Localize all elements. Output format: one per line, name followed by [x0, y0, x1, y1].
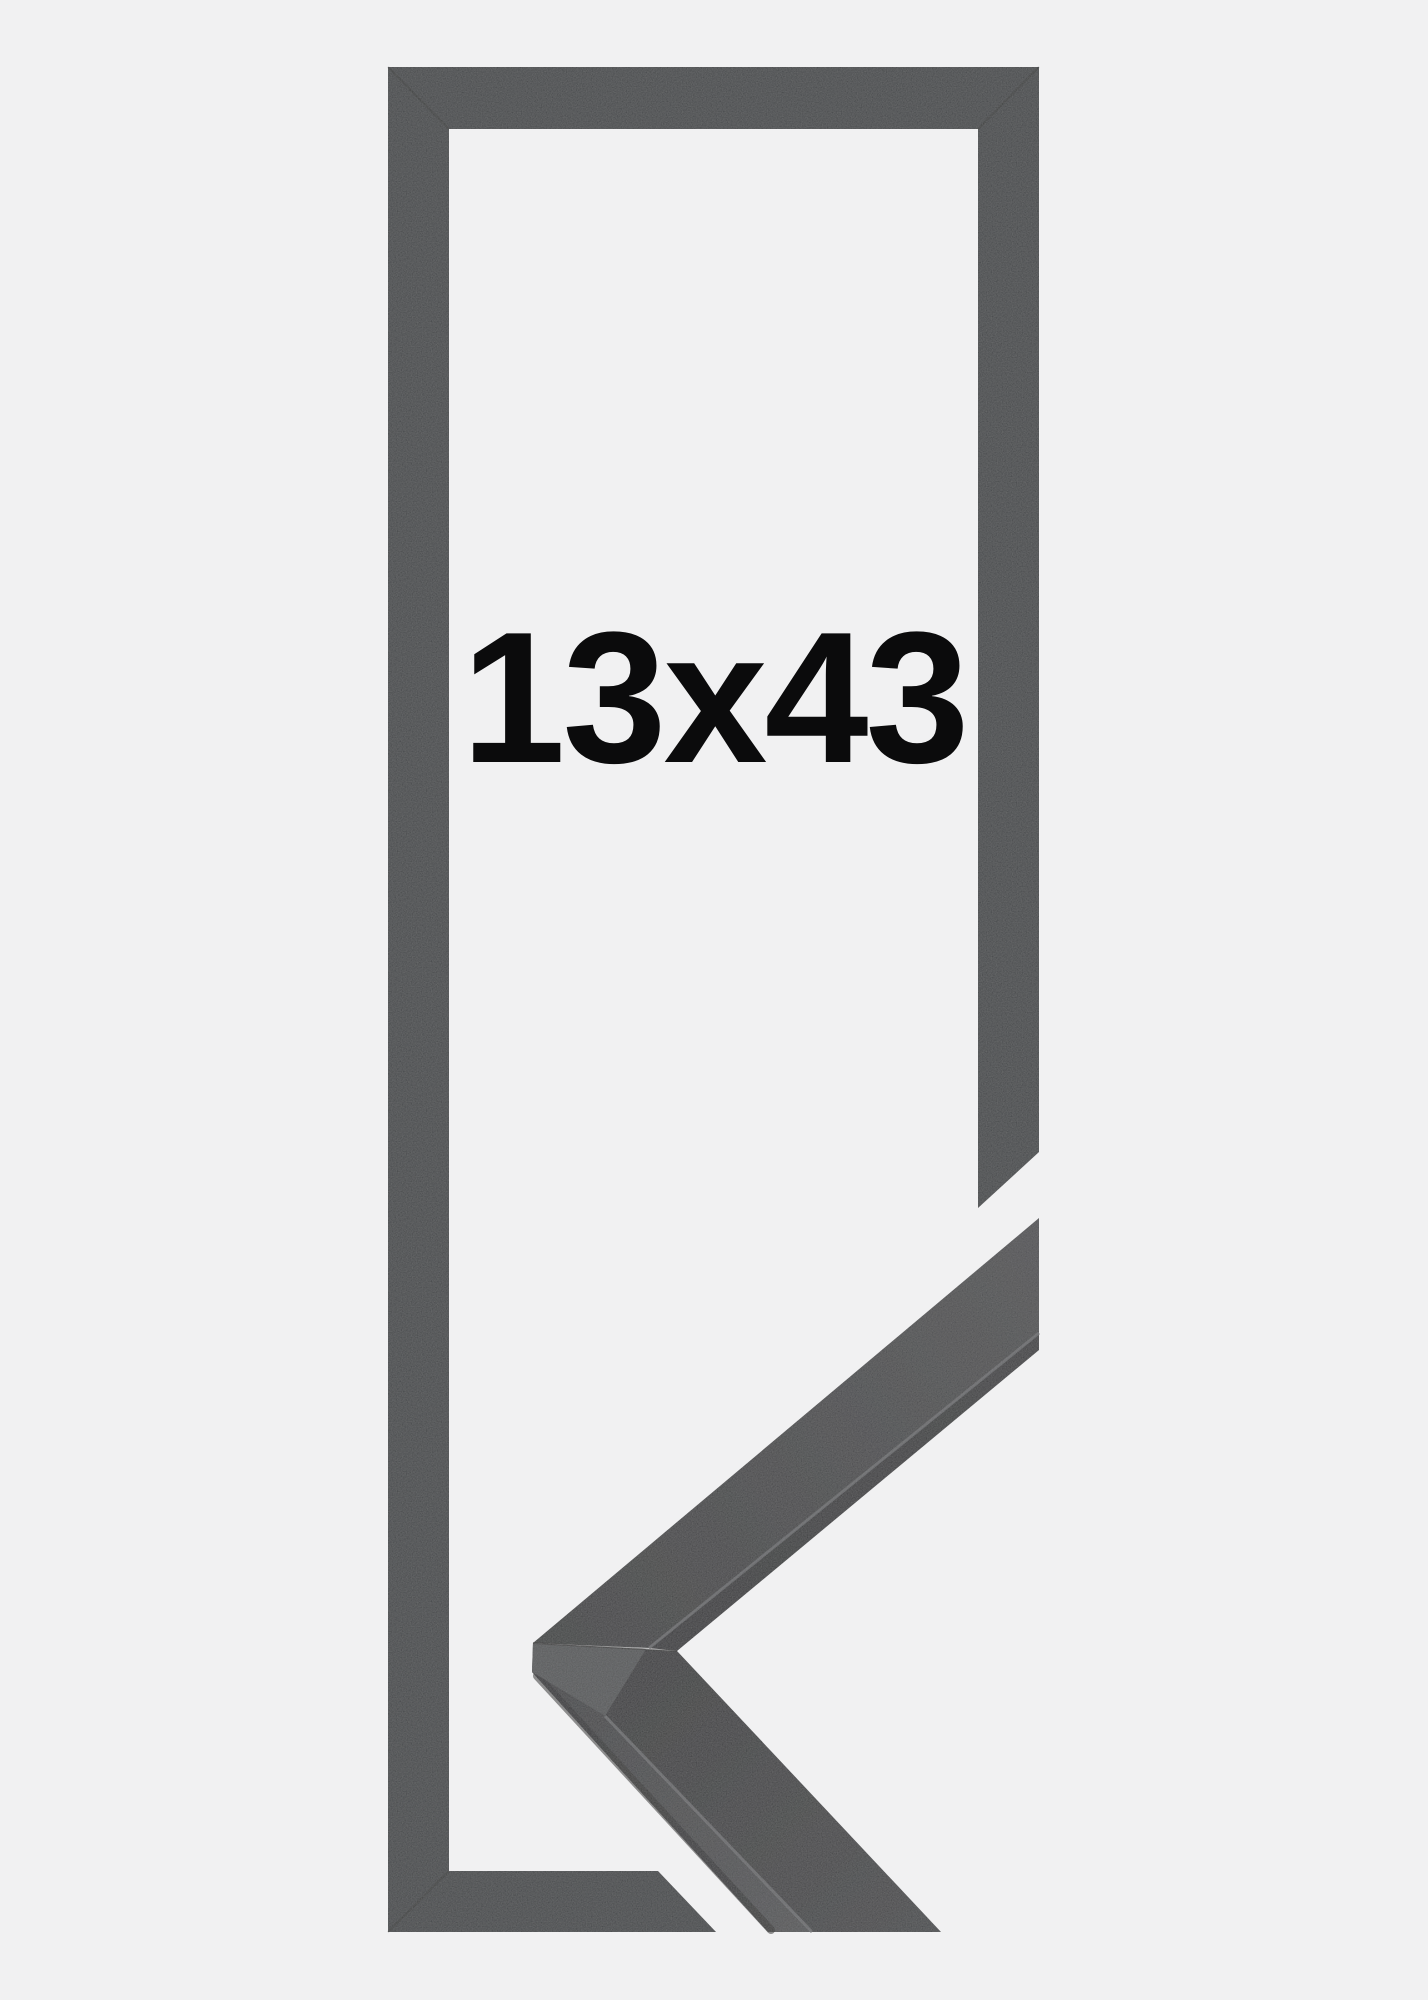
- product-image: 13x43: [0, 0, 1428, 2000]
- frame-product-illustration: 13x43: [0, 0, 1428, 2000]
- size-label: 13x43: [461, 593, 966, 802]
